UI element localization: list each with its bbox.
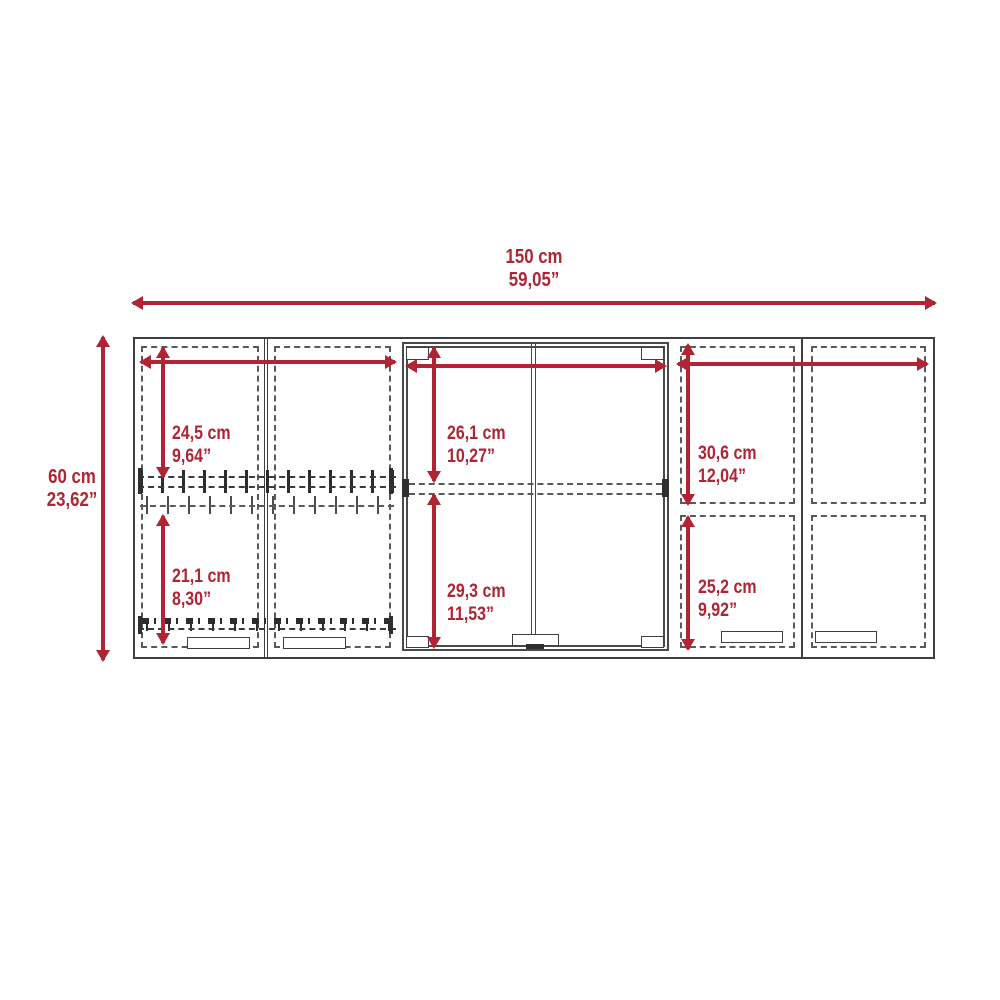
right-upper-cm: 30,6 cm	[698, 442, 757, 465]
stemware-rack-end-left	[138, 616, 142, 634]
center-lower-inch: 11,53”	[447, 603, 506, 626]
center-upper-inch: 10,27”	[447, 445, 506, 468]
stemware-rack-rail	[138, 628, 396, 630]
center-section-width-arrow	[407, 364, 665, 368]
left-lower-label: 21,1 cm 8,30”	[172, 565, 231, 611]
right-door-2-upper-outline	[811, 346, 926, 504]
glass-door-latch	[526, 644, 544, 649]
left-upper-label: 24,5 cm 9,64”	[172, 422, 231, 468]
shelf-pin-right	[662, 479, 669, 497]
center-lower-cm: 29,3 cm	[447, 580, 506, 603]
stemware-rack-end-right	[389, 616, 393, 634]
hinge-bottom-right	[641, 636, 664, 648]
right-upper-height-arrow	[686, 345, 690, 504]
left-lower-cm: 21,1 cm	[172, 565, 231, 588]
hinge-bottom-left	[406, 636, 429, 648]
plate-rack-icon	[140, 470, 394, 493]
overall-width-inch: 59,05”	[450, 269, 618, 292]
cabinet-dimension-diagram: 150 cm 59,05” 60 cm 23,62”	[0, 0, 1000, 1000]
plate-rack-end-right	[389, 468, 393, 494]
overall-width-label: 150 cm 59,05”	[450, 246, 618, 292]
glass-door-center-divider	[531, 343, 536, 650]
center-shelf-line-bottom	[409, 493, 662, 495]
overall-height-arrow	[101, 337, 105, 660]
right-section-width-arrow	[678, 362, 927, 366]
left-upper-inch: 9,64”	[172, 445, 231, 468]
left-lower-inch: 8,30”	[172, 588, 231, 611]
right-lower-height-arrow	[686, 517, 690, 649]
right-lower-cm: 25,2 cm	[698, 576, 757, 599]
center-shelf-line-top	[409, 483, 662, 485]
right-doors-divider	[801, 337, 803, 659]
shelf-pin-left	[402, 479, 409, 497]
center-upper-cm: 26,1 cm	[447, 422, 506, 445]
right-door-2-handle	[815, 631, 877, 643]
left-section-width-arrow	[141, 360, 395, 364]
plate-rack-rail-bottom	[140, 505, 394, 507]
overall-width-cm: 150 cm	[450, 246, 618, 269]
right-door-2-lower-outline	[811, 515, 926, 648]
right-upper-inch: 12,04”	[698, 465, 757, 488]
center-lower-label: 29,3 cm 11,53”	[447, 580, 506, 626]
right-lower-label: 25,2 cm 9,92”	[698, 576, 757, 622]
plate-rack-end-left	[138, 468, 142, 494]
left-door-1-handle	[187, 637, 250, 649]
plate-rack-rail-top	[138, 476, 396, 478]
center-upper-label: 26,1 cm 10,27”	[447, 422, 506, 468]
overall-width-arrow	[133, 301, 935, 305]
left-upper-height-arrow	[161, 348, 165, 477]
center-upper-height-arrow	[432, 348, 436, 481]
right-door-1-handle	[721, 631, 783, 643]
right-lower-inch: 9,92”	[698, 599, 757, 622]
left-upper-cm: 24,5 cm	[172, 422, 231, 445]
left-door-2-handle	[283, 637, 346, 649]
center-lower-height-arrow	[432, 495, 436, 647]
plate-rack-rail-mid	[138, 486, 396, 488]
right-upper-label: 30,6 cm 12,04”	[698, 442, 757, 488]
left-lower-height-arrow	[161, 516, 165, 643]
